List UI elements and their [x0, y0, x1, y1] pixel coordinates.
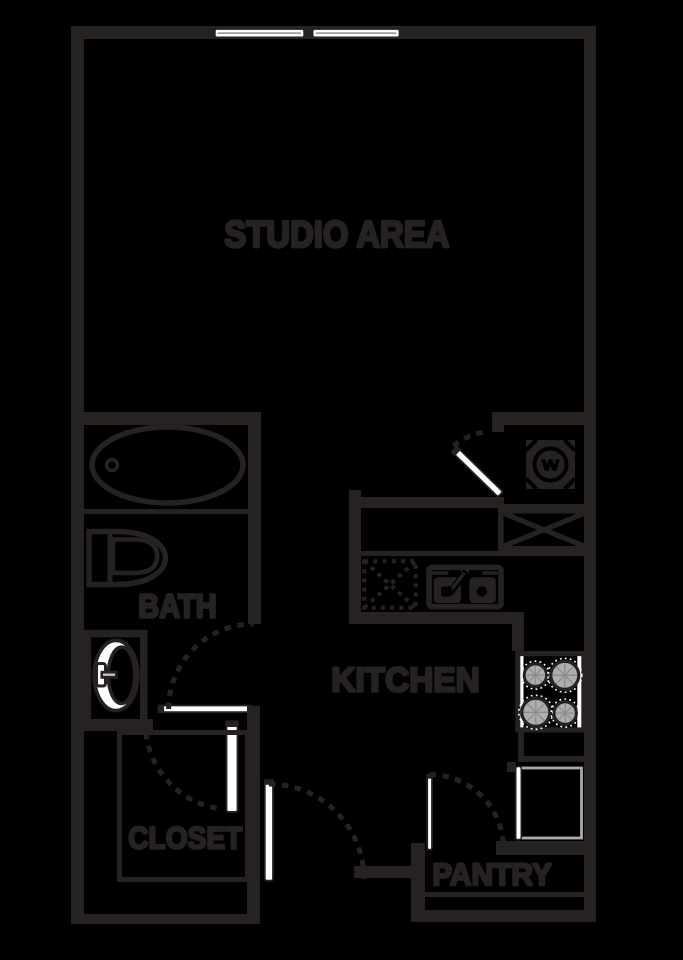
svg-text:PANTRY: PANTRY: [432, 857, 552, 892]
svg-text:W: W: [542, 458, 559, 474]
svg-text:BATH: BATH: [138, 589, 216, 626]
svg-text:STUDIO AREA: STUDIO AREA: [224, 213, 449, 255]
svg-text:KITCHEN: KITCHEN: [331, 661, 479, 699]
svg-text:CLOSET: CLOSET: [128, 821, 242, 856]
